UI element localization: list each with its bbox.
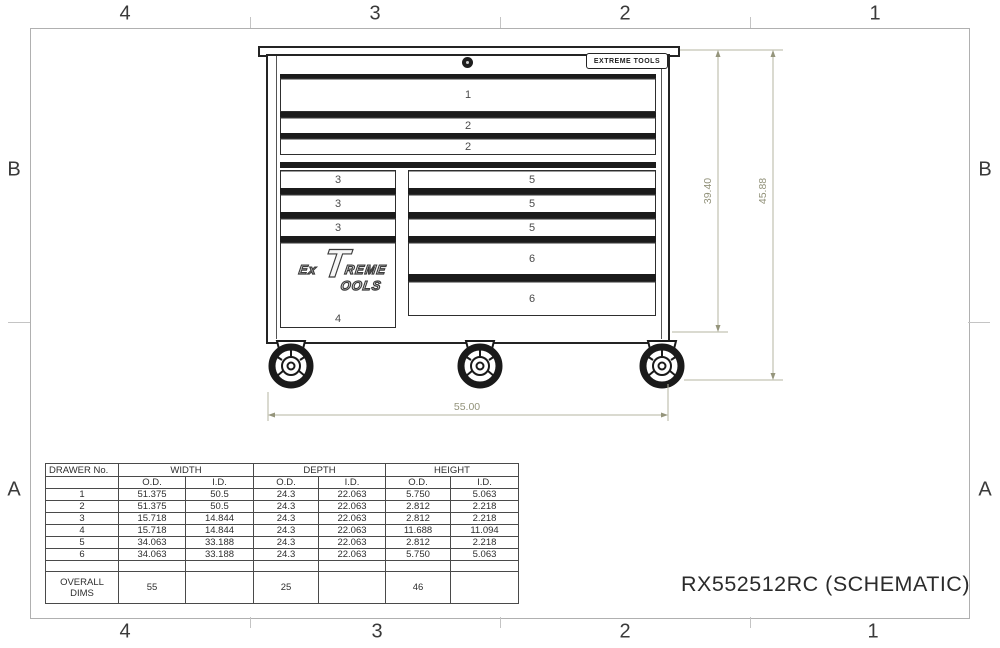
table-cell: DEPTH xyxy=(254,464,386,477)
table-cell: 14.844 xyxy=(186,513,254,525)
table-cell: 22.063 xyxy=(319,525,386,537)
zone-tick xyxy=(968,322,990,323)
drawer-1: 1 xyxy=(280,78,656,112)
table-cell: 22.063 xyxy=(319,549,386,561)
brand-badge: EXTREME TOOLS xyxy=(586,53,668,69)
extreme-tools-logo: Ex T REME OOLS xyxy=(292,248,396,304)
table-cell: 24.3 xyxy=(254,489,319,501)
table-cell: 22.063 xyxy=(319,489,386,501)
table-cell xyxy=(46,477,119,489)
drawer-2b: 2 xyxy=(280,138,656,155)
drawer-number: 3 xyxy=(335,222,341,234)
drawer-gap xyxy=(408,274,656,281)
table-row-spacer xyxy=(46,561,519,572)
lock-icon xyxy=(462,57,473,68)
zone-tick xyxy=(750,617,751,628)
table-row: 534.06333.18824.322.0632.8122.218 xyxy=(46,537,519,549)
table-cell xyxy=(46,561,119,572)
table-cell: 25 xyxy=(254,572,319,604)
table-cell: 15.718 xyxy=(119,525,186,537)
table-cell: 11.688 xyxy=(386,525,451,537)
drawer-number: 4 xyxy=(335,313,341,327)
zone-label-top: 3 xyxy=(369,3,380,26)
table-cell xyxy=(186,561,254,572)
table-cell xyxy=(254,561,319,572)
table-cell: 2.218 xyxy=(451,537,519,549)
page-title: RX552512RC (SCHEMATIC) xyxy=(640,572,970,597)
zone-label-left: A xyxy=(7,479,20,502)
zone-label-bottom: 1 xyxy=(867,621,878,644)
table-cell: 6 xyxy=(46,549,119,561)
schematic-page: 4 3 2 1 4 3 2 1 B A B A EXTREME TOOLS 1 … xyxy=(0,0,1000,648)
drawer-number: 5 xyxy=(529,222,535,234)
drawer-number: 3 xyxy=(335,198,341,210)
table-cell: 5.063 xyxy=(451,489,519,501)
drawer-3a: 3 xyxy=(280,170,396,189)
table-cell: 5.750 xyxy=(386,549,451,561)
table-cell: 2 xyxy=(46,501,119,513)
zone-tick xyxy=(250,17,251,28)
drawer-5a: 5 xyxy=(408,170,656,189)
drawer-number: 1 xyxy=(465,89,471,101)
table-cell: HEIGHT xyxy=(386,464,519,477)
dim-overall-width: 55.00 xyxy=(432,401,502,413)
table-cell: 1 xyxy=(46,489,119,501)
table-cell: O.D. xyxy=(254,477,319,489)
table-cell: O.D. xyxy=(386,477,451,489)
drawer-6b: 6 xyxy=(408,281,656,316)
table-cell xyxy=(319,561,386,572)
zone-label-bottom: 4 xyxy=(119,621,130,644)
table-cell: 2.218 xyxy=(451,501,519,513)
logo-text: OOLS xyxy=(340,278,383,293)
drawer-5b: 5 xyxy=(408,194,656,213)
table-cell xyxy=(119,561,186,572)
table-cell: DRAWER No. xyxy=(46,464,119,477)
zone-tick xyxy=(250,617,251,628)
zone-label-left: B xyxy=(7,159,20,182)
table-cell xyxy=(451,572,519,604)
zone-label-top: 4 xyxy=(119,3,130,26)
table-cell: 11.094 xyxy=(451,525,519,537)
drawer-5c: 5 xyxy=(408,218,656,237)
drawer-3b: 3 xyxy=(280,194,396,213)
table-cell: 2.812 xyxy=(386,537,451,549)
table-row: 634.06333.18824.322.0635.7505.063 xyxy=(46,549,519,561)
table-cell xyxy=(186,572,254,604)
table-cell: 24.3 xyxy=(254,549,319,561)
table-cell: I.D. xyxy=(451,477,519,489)
zone-label-bottom: 2 xyxy=(619,621,630,644)
drawer-number: 5 xyxy=(529,198,535,210)
table-cell: 2.812 xyxy=(386,513,451,525)
dims-table: DRAWER No.WIDTHDEPTHHEIGHTO.D.I.D.O.D.I.… xyxy=(45,463,519,604)
table-cell: 24.3 xyxy=(254,501,319,513)
logo-text: REME xyxy=(344,262,388,277)
logo-text: Ex xyxy=(298,262,318,277)
table-cell xyxy=(386,561,451,572)
zone-label-top: 2 xyxy=(619,3,630,26)
zone-label-right: A xyxy=(978,479,991,502)
zone-tick xyxy=(8,322,30,323)
table-cell: 3 xyxy=(46,513,119,525)
table-cell: 2.812 xyxy=(386,501,451,513)
zone-label-bottom: 3 xyxy=(371,621,382,644)
table-cell xyxy=(451,561,519,572)
dims-table-head: DRAWER No.WIDTHDEPTHHEIGHTO.D.I.D.O.D.I.… xyxy=(46,464,519,489)
table-cell: 5.063 xyxy=(451,549,519,561)
table-cell xyxy=(319,572,386,604)
table-cell: 24.3 xyxy=(254,513,319,525)
table-cell: 5 xyxy=(46,537,119,549)
drawer-6a: 6 xyxy=(408,242,656,275)
table-cell: 14.844 xyxy=(186,525,254,537)
table-cell: OVERALL DIMS xyxy=(46,572,119,604)
drawer-number: 5 xyxy=(529,174,535,186)
table-row: 151.37550.524.322.0635.7505.063 xyxy=(46,489,519,501)
table-cell: 50.5 xyxy=(186,501,254,513)
table-cell: 51.375 xyxy=(119,501,186,513)
table-cell: 15.718 xyxy=(119,513,186,525)
table-cell: O.D. xyxy=(119,477,186,489)
table-cell: 22.063 xyxy=(319,513,386,525)
table-row-overall: OVERALL DIMS552546 xyxy=(46,572,519,604)
table-cell: 24.3 xyxy=(254,525,319,537)
table-cell: 34.063 xyxy=(119,537,186,549)
dim-overall-height: 45.88 xyxy=(757,173,769,209)
table-row: 415.71814.84424.322.06311.68811.094 xyxy=(46,525,519,537)
drawer-number: 2 xyxy=(465,120,471,132)
table-row: 251.37550.524.322.0632.8122.218 xyxy=(46,501,519,513)
table-cell: 46 xyxy=(386,572,451,604)
table-cell: 4 xyxy=(46,525,119,537)
zone-tick xyxy=(750,17,751,28)
table-cell: I.D. xyxy=(319,477,386,489)
drawer-2a: 2 xyxy=(280,117,656,134)
drawer-number: 6 xyxy=(529,293,535,305)
table-cell: 22.063 xyxy=(319,537,386,549)
table-cell: 33.188 xyxy=(186,537,254,549)
table-cell: WIDTH xyxy=(119,464,254,477)
table-cell: 33.188 xyxy=(186,549,254,561)
zone-tick xyxy=(500,617,501,628)
zone-tick xyxy=(500,17,501,28)
dims-table-body: 151.37550.524.322.0635.7505.063251.37550… xyxy=(46,489,519,604)
table-row: 315.71814.84424.322.0632.8122.218 xyxy=(46,513,519,525)
zone-label-top: 1 xyxy=(869,3,880,26)
zone-label-right: B xyxy=(978,159,991,182)
table-cell: 51.375 xyxy=(119,489,186,501)
table-cell: 24.3 xyxy=(254,537,319,549)
table-cell: 55 xyxy=(119,572,186,604)
table-cell: 50.5 xyxy=(186,489,254,501)
drawer-3c: 3 xyxy=(280,218,396,237)
drawer-gap xyxy=(280,162,656,168)
drawer-number: 3 xyxy=(335,174,341,186)
drawer-number: 6 xyxy=(529,253,535,265)
table-cell: 2.218 xyxy=(451,513,519,525)
table-cell: 34.063 xyxy=(119,549,186,561)
table-cell: I.D. xyxy=(186,477,254,489)
table-cell: 22.063 xyxy=(319,501,386,513)
dim-body-height: 39.40 xyxy=(702,173,714,209)
brand-badge-label: EXTREME TOOLS xyxy=(594,58,660,65)
table-cell: 5.750 xyxy=(386,489,451,501)
drawer-number: 2 xyxy=(465,141,471,153)
